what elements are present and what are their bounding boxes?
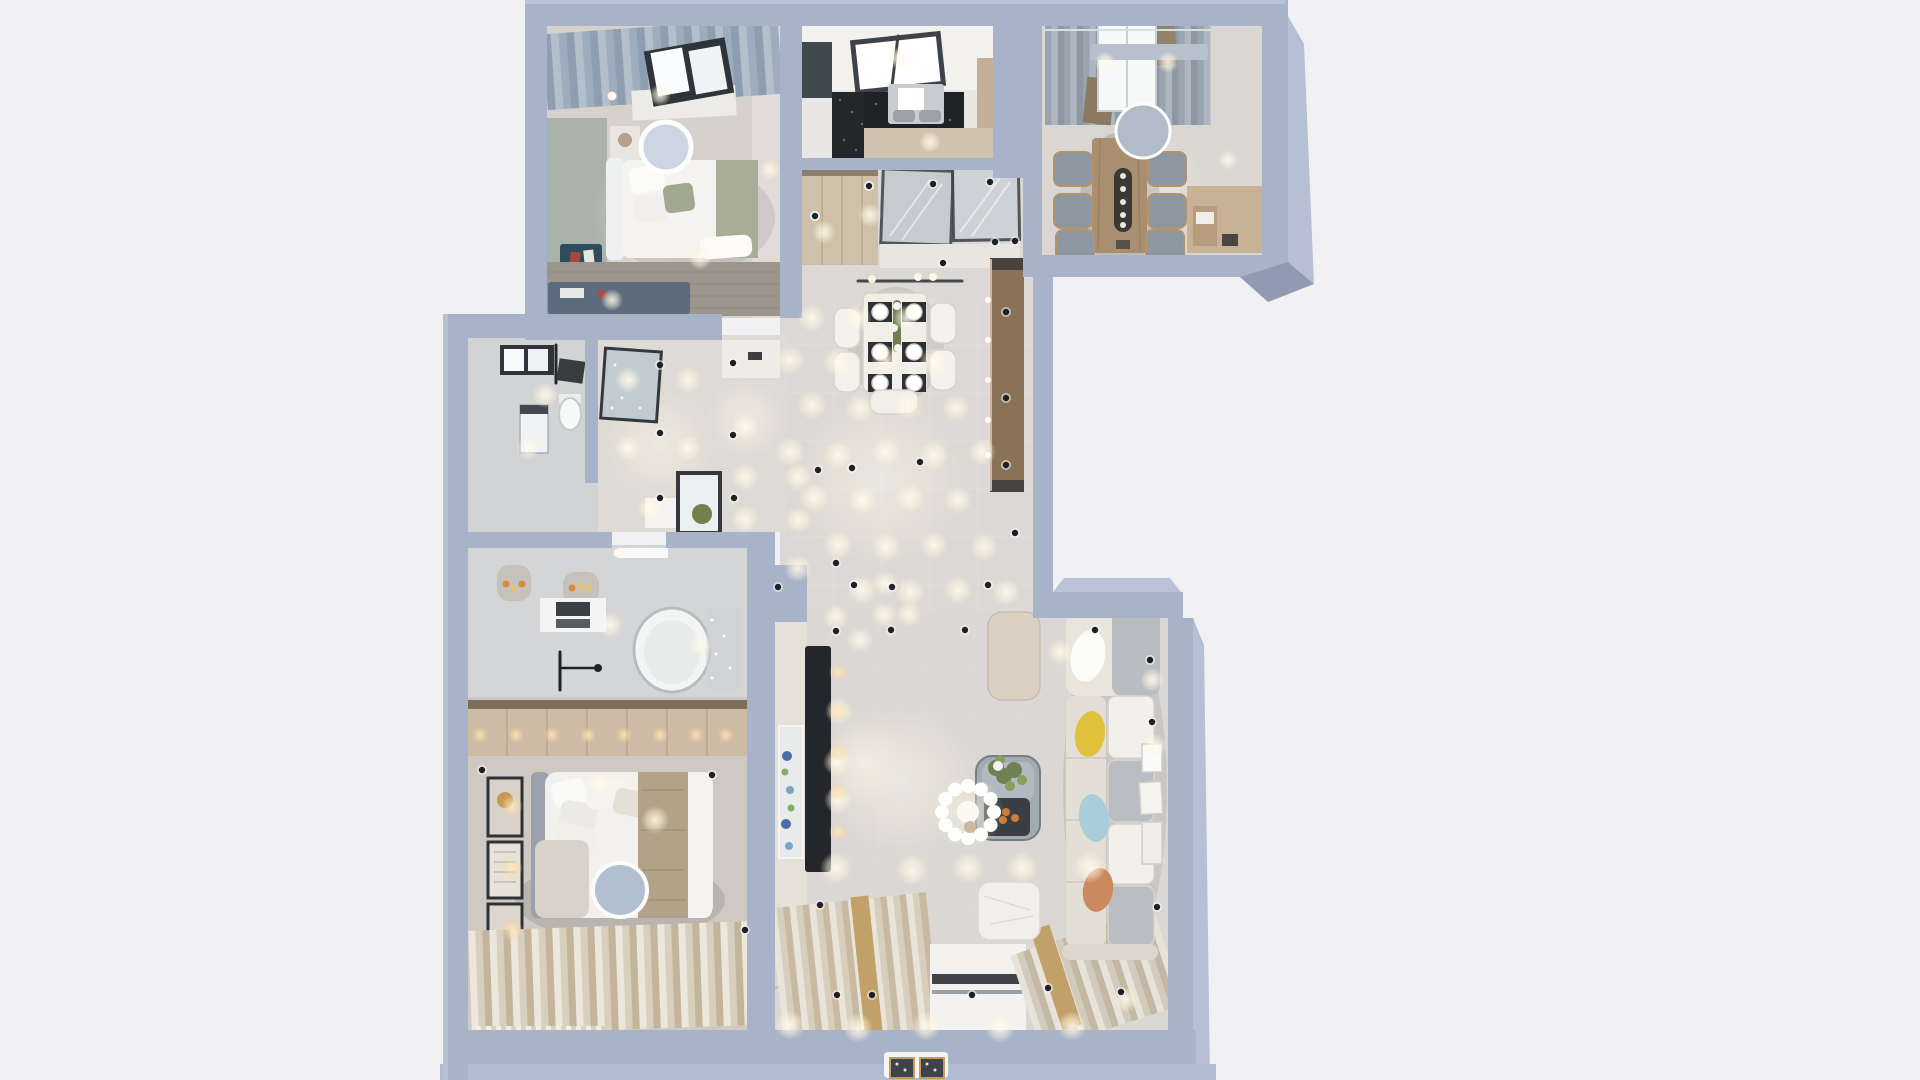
living-ceiling-lights (1006, 852, 1038, 884)
kitchen-burner (893, 110, 915, 122)
wardrobe2-spotlights (688, 727, 704, 743)
bedroom2-art-spots (501, 919, 523, 941)
tv-backlight-glows (829, 663, 847, 681)
bedroom2-ceiling-lamp (593, 863, 647, 917)
artwork-colors-3 (788, 805, 795, 812)
wardrobe2-spotlights (616, 727, 632, 743)
ceiling-spot-dots (657, 430, 663, 436)
wall-left-lower (448, 314, 468, 1080)
hall-ceiling-lights (845, 393, 875, 423)
dinner-plates (872, 304, 888, 320)
ceiling-spot-dots (1154, 904, 1160, 910)
bedroom2-lights (586, 771, 614, 799)
dining-curtains-stripe (1064, 21, 1071, 125)
runner-plates (1120, 173, 1126, 179)
hall-ceiling-lights (797, 390, 827, 420)
hall-ceiling-lights (844, 304, 872, 332)
bath-lights (597, 612, 623, 638)
outdoor-chair-pattern (926, 1063, 929, 1066)
plant-foliage-light (1017, 775, 1027, 785)
threshold-handle (748, 352, 762, 360)
wall-bevel-top (525, 0, 1285, 4)
bed1-headboard (606, 158, 624, 260)
sideboard-books (1196, 212, 1214, 224)
kitchen-counter-black-col (832, 92, 864, 158)
dining-curtains-stripe (1070, 21, 1077, 125)
ceiling-spot-dots (940, 260, 946, 266)
wall-bathA-right (585, 335, 598, 483)
dining-lights (1094, 51, 1116, 73)
chandelier-ring (948, 782, 962, 796)
wall-bath-top (448, 314, 528, 338)
artwork-colors-2 (786, 786, 794, 794)
tv-backlight-glows (829, 743, 847, 761)
dining-curtains-stripe (1197, 21, 1204, 125)
ceiling-spot-dots (1003, 395, 1009, 401)
wall-living-right (1168, 618, 1193, 1042)
counter-speckle (949, 119, 951, 121)
dining-curtains-stripe (1077, 21, 1084, 125)
dining-chair (1148, 194, 1186, 228)
bedroom1-mirror (641, 122, 691, 172)
mirror-sparkle (611, 407, 614, 410)
ceiling-spot-dots (833, 560, 839, 566)
corridor-display-box (678, 473, 720, 533)
niche-candles-light (578, 583, 584, 589)
counter-speckle (875, 103, 877, 105)
hall-ceiling-lights (731, 463, 759, 491)
living-ceiling-lights (1047, 639, 1073, 665)
wall-outer-mid-right (1033, 277, 1053, 595)
kitchen-lights (919, 131, 941, 153)
ceiling-spot-dots (1149, 719, 1155, 725)
pendant-bulbs (868, 275, 876, 283)
wall-bedroom1-bottom (525, 314, 722, 340)
outdoor-chair-pattern (904, 1069, 907, 1072)
wall-step-horizontal (1033, 592, 1183, 618)
mirror-sparkle (621, 397, 624, 400)
pendant-bulbs (914, 273, 922, 281)
marble-side-table (978, 882, 1040, 940)
living-ceiling-lights (985, 1013, 1015, 1043)
hall-ceiling-lights (823, 530, 853, 560)
living-ceiling-lights (896, 854, 928, 886)
bathB-shelf (618, 548, 668, 558)
ceiling-spot-dots (985, 582, 991, 588)
balcony-door-track2 (932, 990, 1022, 994)
dining-curtains-stripe (1045, 21, 1052, 125)
dining-curtains-stripe (1204, 21, 1211, 125)
ceiling-spot-dots (987, 179, 993, 185)
outdoor-chair-pattern (896, 1063, 899, 1066)
artwork-colors (782, 751, 792, 761)
ceiling-spot-dots (869, 992, 875, 998)
island-under-lights (985, 452, 991, 458)
tv-backlight-glows (829, 703, 847, 721)
counter-speckle (861, 123, 863, 125)
hall-ceiling-lights (992, 578, 1020, 606)
wardrobe2-spotlights (580, 727, 596, 743)
hall-ceiling-lights (731, 505, 759, 533)
bedroom2-lights (641, 806, 669, 834)
ceiling-spot-dots (834, 992, 840, 998)
dining-pendant-lamp (1116, 104, 1170, 158)
tub-filler-head (594, 664, 602, 672)
hall-ceiling-lights (893, 390, 923, 420)
dinner-plates (906, 344, 922, 360)
bathA-skylight-pane (528, 349, 548, 371)
hall-ceiling-lights (944, 486, 972, 514)
sofa-back-cushion (1108, 886, 1154, 946)
island-cap (990, 258, 1024, 270)
hall-ceiling-lights (775, 345, 805, 375)
wall-bevel-left (443, 314, 448, 1080)
dining-curtains-stripe (1058, 21, 1065, 125)
wardrobe2-spotlights (718, 727, 734, 743)
runner-plates (1120, 222, 1126, 228)
ceiling-spot-dots (1003, 309, 1009, 315)
living-ceiling-lights (843, 1013, 873, 1043)
island-under-lights (985, 337, 991, 343)
ceiling-spot-dots (962, 627, 968, 633)
bonsai-plant (692, 504, 712, 524)
island-under-lights (985, 417, 991, 423)
runner-plates (1120, 199, 1126, 205)
hall-ceiling-lights (944, 576, 972, 604)
dining-chair (1054, 152, 1092, 186)
chandelier-ring (961, 831, 975, 845)
wardrobe2-spotlights (508, 727, 524, 743)
dining-curtains-stripe (1178, 21, 1185, 125)
chandelier-ring (961, 779, 975, 793)
ceiling-spot-dots (866, 183, 872, 189)
ceiling-spot-dots (775, 584, 781, 590)
entry-lights (812, 220, 836, 244)
floorplan-render-canvas (0, 0, 1920, 1080)
ceiling-spot-dots (817, 902, 823, 908)
wardrobe2-spotlights (544, 727, 560, 743)
bed1-pillow (633, 194, 670, 223)
ceiling-spot-dots (889, 584, 895, 590)
ceiling-spot-dots (851, 582, 857, 588)
mirror-sparkle (614, 364, 617, 367)
hall-ceiling-lights (871, 345, 901, 375)
living-ceiling-lights (1057, 1011, 1087, 1041)
living-ceiling-lights (896, 601, 922, 627)
corridor-lights (675, 435, 701, 461)
counter-speckle (851, 111, 853, 113)
living-ceiling-lights (911, 1011, 941, 1041)
scene-root (440, 0, 1314, 1080)
ceiling-spot-dots (1003, 462, 1009, 468)
bedroom1-shelf-plant (618, 133, 632, 147)
shower-head (557, 358, 586, 383)
wardrobe2-spotlights (652, 727, 668, 743)
mirror-sparkle (639, 407, 642, 410)
ceiling-spot-dots (1092, 627, 1098, 633)
bath-lights (688, 633, 712, 657)
chandelier-ring (974, 828, 988, 842)
living-ceiling-lights (847, 627, 873, 653)
counter-speckle (839, 99, 841, 101)
table-deco-white (993, 761, 1003, 771)
wardrobe2-spotlights (472, 727, 488, 743)
hall-ceiling-lights (968, 438, 996, 466)
glass-sparkle (723, 635, 726, 638)
living-ceiling-lights (775, 1010, 805, 1040)
chandelier-shade (964, 821, 976, 833)
hall-ceiling-lights (871, 532, 901, 562)
bedroom2-art-spots (501, 795, 523, 817)
hall-ceiling-lights (920, 531, 948, 559)
ceiling-spot-dots (917, 459, 923, 465)
hall-ceiling-lights (970, 533, 998, 561)
bedroom2-art-spots (501, 857, 523, 879)
corridor-lights (675, 367, 701, 393)
niche-candles (519, 581, 526, 588)
runner-plates (1120, 186, 1126, 192)
hall-ceiling-lights (823, 347, 853, 377)
living-ceiling-lights (1074, 851, 1106, 883)
ceiling-spot-dots (849, 465, 855, 471)
fruit-oranges (1011, 814, 1019, 822)
ceiling-spot-dots (1147, 657, 1153, 663)
outdoor-chair (890, 1058, 914, 1078)
bathB-niche (497, 565, 531, 601)
dining-curtains-stripe (1191, 21, 1198, 125)
wall-bevel-bottom (440, 1064, 1216, 1080)
ceiling-spot-dots (1012, 530, 1018, 536)
bedroom1-lights (688, 246, 712, 270)
living-ottoman (988, 612, 1040, 700)
ceiling-spot-dots (731, 495, 737, 501)
dining-curtains-stripe (1051, 21, 1058, 125)
hall-ceiling-lights (784, 554, 812, 582)
living-ceiling-lights (1143, 733, 1167, 757)
wall-bevel-step (1053, 578, 1181, 592)
balcony-door-track (932, 974, 1022, 984)
apartment-floorplan-3d-render (0, 0, 1920, 1080)
hall-ceiling-lights (799, 483, 829, 513)
runner-plates (1120, 212, 1126, 218)
ceiling-spot-dots (833, 628, 839, 634)
bathA-skylight-pane (504, 349, 524, 371)
bedroom1-lights (601, 289, 623, 311)
tv-backlight-glows (829, 823, 847, 841)
hall-ceiling-lights (798, 304, 826, 332)
artwork-colors-2 (785, 842, 793, 850)
hall-ceiling-lights (895, 483, 925, 513)
bedroom1-lights (649, 84, 671, 106)
toilet (559, 398, 581, 430)
bright-spots (614, 549, 623, 558)
hall-ceiling-lights (871, 602, 897, 628)
counter-speckle (855, 149, 857, 151)
plant-foliage-light (1005, 781, 1015, 791)
bed2-duvet-edge (688, 772, 712, 918)
bright-spots (608, 92, 617, 101)
glass-sparkle (715, 653, 718, 656)
vanity-keys (556, 619, 590, 628)
ceiling-spot-dots (930, 181, 936, 187)
wall-dining-bottom (1023, 255, 1290, 277)
hall-ceiling-lights (893, 305, 919, 331)
wall-shelf-frame (1142, 822, 1162, 864)
tv-backlight-glows (829, 783, 847, 801)
dinner-plates (872, 375, 888, 391)
chandelier-ring (984, 792, 998, 806)
ceiling-spot-dots (730, 432, 736, 438)
ceiling-spot-dots (812, 213, 818, 219)
wall-dining-left (1023, 0, 1042, 277)
ceiling-spot-dots (1118, 989, 1124, 995)
chandelier-ring (987, 805, 1001, 819)
island-under-lights (985, 297, 991, 303)
hall-ceiling-lights (942, 394, 970, 422)
hall-ceiling-lights (871, 437, 901, 467)
hall-ceiling-lights (775, 437, 805, 467)
wall-kitchen-dining (993, 0, 1023, 178)
pendant-bulbs (929, 273, 937, 281)
chandelier-ring (935, 805, 949, 819)
plant-foliage (1006, 762, 1022, 778)
living-ceiling-lights (820, 852, 852, 884)
niche-candles (503, 581, 510, 588)
ceiling-spot-dots (1012, 238, 1018, 244)
dining-table-foot-deco (1116, 240, 1130, 249)
wall-shelf-frame (1139, 781, 1163, 814)
chandelier-ring (938, 818, 952, 832)
kitchen-cabinet-wood (977, 58, 993, 128)
bedroom2-wardrobe-top (467, 700, 747, 709)
kitchen-burner (919, 110, 941, 122)
bedroom1-lights (760, 160, 780, 180)
wall-kitchen-bottom (800, 158, 993, 170)
casual-chair (930, 303, 956, 343)
dining-lights (1157, 51, 1179, 73)
kitchen-lights (887, 47, 909, 69)
bath-lights (516, 436, 540, 460)
ceiling-spot-dots (969, 992, 975, 998)
ceiling-spot-dots (657, 362, 663, 368)
island-under-lights (985, 377, 991, 383)
outdoor-chair (920, 1058, 944, 1078)
wall-corridor-bathB-right (666, 532, 747, 548)
dining-chair (1054, 194, 1092, 228)
outdoor-chair-pattern (934, 1069, 937, 1072)
ceiling-spot-dots (657, 495, 663, 501)
artwork-colors (781, 819, 791, 829)
niche-candles (569, 585, 576, 592)
wall-corridor-bathB-left (448, 532, 612, 548)
hall-ceiling-lights (919, 347, 949, 377)
island-cap (990, 480, 1024, 492)
wall-bedroom1-right (780, 0, 802, 318)
ceiling-spot-dots (479, 767, 485, 773)
entry-lights (858, 203, 882, 227)
bed2-blanket-gray (535, 840, 589, 918)
chandelier-center (957, 801, 979, 823)
dinner-plates (906, 375, 922, 391)
kitchen-tall-cabinet-dark (800, 42, 832, 98)
dining-lights (1218, 150, 1238, 170)
wall-bevel-living-right (1193, 618, 1210, 1080)
dresser-tray (560, 288, 584, 298)
counter-speckle (843, 139, 845, 141)
living-ceiling-lights (1140, 668, 1164, 692)
sofa-armrest (1062, 944, 1158, 960)
corridor-lights (615, 367, 641, 393)
niche-candles-light (586, 585, 592, 591)
wall-left-upper (525, 0, 547, 338)
bed1-pillow-sage (662, 182, 696, 214)
dining-curtains-stripe (1185, 21, 1192, 125)
glass-sparkle (729, 667, 732, 670)
vanity-tablet (556, 602, 590, 616)
ceiling-spot-dots (730, 360, 736, 366)
wall-dining-right (1262, 0, 1288, 277)
kitchen-sink-basin (898, 88, 924, 110)
wall-bevel-dining-right (1288, 16, 1314, 284)
bright-spots (960, 803, 969, 812)
ceiling-spot-dots (992, 239, 998, 245)
artwork-colors-3 (782, 769, 789, 776)
ceiling-spot-dots (742, 927, 748, 933)
corridor-lights (615, 435, 641, 461)
ceiling-spot-dots (888, 627, 894, 633)
ceiling-spot-dots (709, 772, 715, 778)
hall-ceiling-lights (847, 485, 877, 515)
niche-candles-light (511, 585, 517, 591)
living-ceiling-lights (952, 852, 984, 884)
ceiling-spot-dots (1045, 985, 1051, 991)
glass-sparkle (711, 619, 714, 622)
bath-lights (532, 382, 558, 408)
wall-bedroom2-right (747, 532, 775, 1032)
ceiling-spot-dots (815, 467, 821, 473)
glass-sparkle (711, 677, 714, 680)
sideboard-deco-dark (1222, 234, 1238, 246)
